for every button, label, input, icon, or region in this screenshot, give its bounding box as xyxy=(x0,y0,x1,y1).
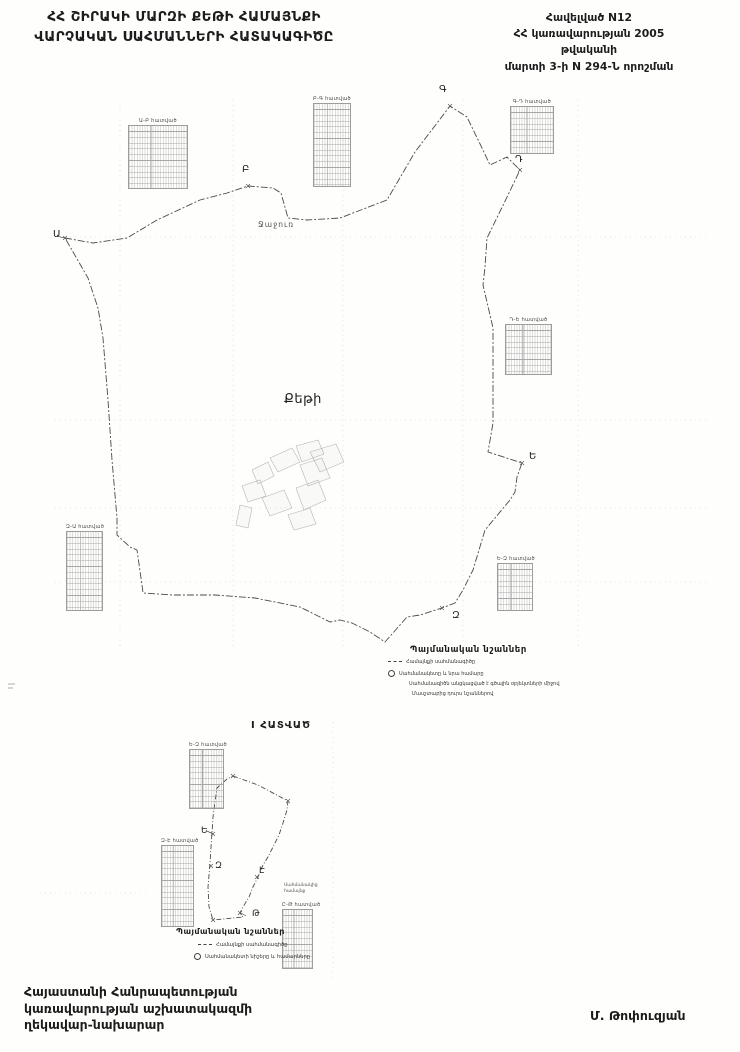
boundary-point-label: Ե xyxy=(201,826,208,836)
section-side-label-line2: համայնք xyxy=(284,889,318,895)
legend-item-label: Սահմանագիծն անցկացված է գծային օբյեկտներ… xyxy=(409,681,560,687)
signatory-title-line1: Հայաստանի Հանրապետության xyxy=(24,984,252,1001)
coordinate-table: Բ-Գ հատված xyxy=(313,96,351,187)
signature-name: Մ. Թոփուզյան xyxy=(590,1008,686,1023)
legend-item-label: Սահմանակետի նիշերը և համարները xyxy=(205,954,310,960)
settlement-parcel xyxy=(288,508,316,530)
boundary-point-label: Ա xyxy=(53,229,61,240)
coordinate-table-grid xyxy=(189,749,224,809)
coordinate-table-label: Ա-Բ հատված xyxy=(139,118,177,124)
settlement-parcel xyxy=(270,448,300,472)
boundary-point-icon xyxy=(388,670,395,677)
boundary-point-label: Թ xyxy=(252,909,260,919)
legend-item-label: Մասշտաբից դուրս նշաններով xyxy=(412,691,493,697)
settlement-area xyxy=(236,440,344,530)
signatory-title-line2: կառավարության աշխատակազմի xyxy=(24,1001,252,1018)
coordinate-table-label: Բ-Գ հատված xyxy=(313,96,351,102)
legend-title: Պայմանական նշաններ xyxy=(410,646,603,655)
boundary-point-label: Է xyxy=(259,866,265,876)
settlement-parcel xyxy=(262,490,292,516)
coordinate-table: Ա-Բ հատված xyxy=(128,118,188,189)
coordinate-table-grid xyxy=(497,563,533,611)
boundary-point-label: Բ xyxy=(242,164,249,175)
settlement-parcel xyxy=(296,480,326,510)
boundary-point-label: Զ xyxy=(215,861,222,871)
legend-main: Պայմանական նշաններ Համայնքի սահմանագիծը … xyxy=(388,646,603,697)
scan-noise xyxy=(8,684,15,688)
legend-item-label: Համայնքի սահմանագիծը xyxy=(216,942,288,948)
neighbor-community-label: Ջաջուռ xyxy=(258,220,294,229)
coordinate-table-grid xyxy=(66,531,103,611)
coordinate-table: Ե-Զ հատված xyxy=(189,742,227,809)
coordinate-table-label: Դ-Ե հատված xyxy=(510,317,548,323)
coordinate-table-grid xyxy=(505,324,552,375)
coordinate-table-grid xyxy=(161,845,194,927)
legend-item: Սահմանակետի նիշերը և համարները xyxy=(194,953,356,960)
boundary-mark-icon xyxy=(231,774,235,778)
coordinate-table-grid xyxy=(510,106,554,154)
legend-item: Մասշտաբից դուրս նշաններով xyxy=(412,692,603,697)
coordinate-table-label: Ե-Զ հատված xyxy=(189,742,227,748)
section-title: I ՀԱՏՎԱԾ xyxy=(251,720,311,731)
boundary-point-label: Գ xyxy=(439,84,447,95)
legend-item-label: Համայնքի սահմանագիծը xyxy=(406,659,475,665)
settlement-parcel xyxy=(252,462,274,484)
coordinate-table-label: Ը-Թ հատված xyxy=(282,902,320,908)
signatory-title: Հայաստանի Հանրապետության կառավարության ա… xyxy=(24,984,252,1034)
coordinate-table-label: Զ-Է հատված xyxy=(161,838,199,844)
coordinate-table: Զ-Ա հատված xyxy=(66,524,104,611)
boundary-point-label: Ե xyxy=(529,451,536,462)
section-side-label: Սահմանակից համայնք xyxy=(284,883,318,896)
boundary-mark-icon xyxy=(211,832,215,836)
coordinate-table: Զ-Է հատված xyxy=(161,838,199,927)
map-linework xyxy=(0,0,740,1052)
coordinate-table: Գ-Դ հատված xyxy=(510,99,554,154)
legend-item: Սահմանագիծն անցկացված է գծային օբյեկտներ… xyxy=(409,682,603,687)
coordinate-table: Ե-Զ հատված xyxy=(497,556,535,611)
legend-item: Համայնքի սահմանագիծը xyxy=(388,660,603,665)
boundary-point-label: Դ xyxy=(515,154,523,165)
boundary-mark-icon xyxy=(211,918,215,922)
legend-item: Սահմանակետը և նրա համարը xyxy=(388,670,603,677)
community-name-label: Քեթի xyxy=(284,392,322,407)
boundary-mark-icon xyxy=(448,104,452,108)
coordinate-table-label: Գ-Դ հատված xyxy=(513,99,551,105)
boundary-point-label: Զ xyxy=(452,610,460,621)
coordinate-table-label: Զ-Ա հատված xyxy=(66,524,104,530)
legend-title: Պայմանական նշաններ xyxy=(176,928,356,936)
boundary-line-icon xyxy=(198,944,212,945)
coordinate-table-label: Ե-Զ հատված xyxy=(497,556,535,562)
scanned-map-document: ՀՀ ՇԻՐԱԿԻ ՄԱՐԶԻ ՔԵԹԻ ՀԱՄԱՅՆՔԻ ՎԱՐՉԱԿԱՆ Ս… xyxy=(0,0,740,1052)
coordinate-table: Դ-Ե հատված xyxy=(505,317,552,375)
legend-section: Պայմանական նշաններ Համայնքի սահմանագիծը … xyxy=(166,928,356,960)
boundary-point-icon xyxy=(194,953,201,960)
boundary-line-icon xyxy=(388,661,402,662)
legend-item-label: Սահմանակետը և նրա համարը xyxy=(399,671,484,677)
settlement-parcel xyxy=(236,505,252,528)
legend-item: Համայնքի սահմանագիծը xyxy=(198,943,356,948)
coordinate-table-grid xyxy=(313,103,351,187)
signatory-title-line3: ղեկավար-նախարար xyxy=(24,1017,252,1034)
boundary-mark-icon xyxy=(518,168,522,172)
coordinate-table-grid xyxy=(128,125,188,189)
coordinate-grid xyxy=(40,100,710,980)
